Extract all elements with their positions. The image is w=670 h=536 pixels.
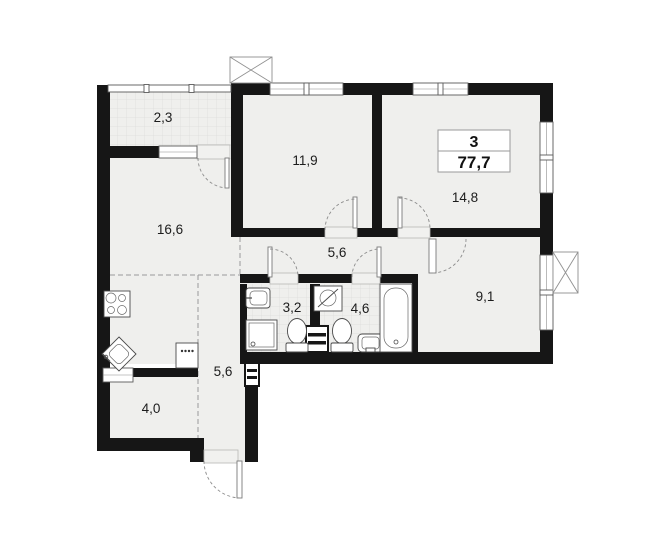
room-label-kitchen-living: 16,6	[157, 222, 183, 237]
wall-top-b	[343, 83, 413, 95]
entrance-door-leaf	[237, 461, 242, 498]
room-label-room-1: 11,9	[292, 153, 317, 168]
entrance-door-arc	[204, 461, 241, 498]
room-label-room-3: 9,1	[476, 289, 495, 304]
wall-outer-left	[97, 85, 110, 451]
wall-rooms-bottom-b	[357, 228, 398, 237]
wall-bottom	[240, 352, 553, 364]
door-leaf-room-2	[398, 197, 402, 228]
total-area: 77,7	[457, 153, 490, 172]
floor-plan: 2,3 11,9 14,8 16,6 5,6 3,2 4,6 9,1 5,6 4…	[0, 0, 670, 536]
window-mullion	[438, 83, 443, 95]
opening-room-2	[398, 227, 430, 238]
wall-rooms-bottom-c	[430, 228, 553, 237]
window-mullion	[304, 83, 309, 95]
shower-tray-symbol	[246, 320, 277, 350]
wall-room-divider	[372, 95, 382, 228]
wall-bath-top-b	[298, 274, 352, 283]
balcony-glazing	[108, 85, 231, 92]
stove-symbol	[104, 291, 130, 317]
glazing-mullion	[144, 85, 149, 93]
vent-shaft-right	[553, 252, 578, 293]
window-mullion	[540, 290, 553, 295]
wall-top-a	[231, 83, 271, 95]
window-mullion	[540, 155, 553, 160]
washing-machine-symbol	[314, 286, 342, 311]
duct-corridor	[245, 363, 259, 386]
wall-balcony-right	[231, 83, 243, 237]
room-label-corridor: 5,6	[214, 364, 233, 379]
bathtub-symbol	[380, 284, 412, 352]
wall-bath-top-a	[240, 274, 270, 283]
door-leaf-wc	[268, 247, 272, 277]
opening-wc	[270, 273, 298, 284]
door-leaf-bathroom	[377, 247, 381, 277]
wall-bath-right	[412, 274, 418, 352]
room-label-wc: 3,2	[283, 300, 302, 315]
wall-sink-symbol	[246, 288, 270, 308]
door-leaf-room-1	[353, 197, 357, 228]
opening-room-1	[325, 227, 357, 238]
door-leaf-balcony	[225, 158, 229, 188]
room-label-bathroom: 4,6	[351, 301, 370, 316]
bathroom-sink-symbol	[358, 334, 383, 352]
door-leaf-room-3	[429, 239, 436, 273]
toilet-symbol	[286, 319, 308, 353]
toilet-symbol	[331, 319, 353, 353]
opening-balcony	[197, 145, 230, 159]
wall-rooms-bottom-a	[243, 228, 325, 237]
room-label-balcony: 2,3	[154, 110, 173, 125]
wall-storage-bottom	[97, 438, 204, 451]
glazing-mullion	[189, 85, 194, 93]
wall-storage-top	[132, 368, 198, 377]
vent-shaft-top	[230, 57, 272, 83]
wall-entrance-step	[190, 438, 204, 462]
rooms-count: 3	[470, 134, 479, 151]
wall-balcony-bottom	[97, 146, 159, 158]
opening-bathroom	[352, 273, 380, 284]
room-label-room-2: 14,8	[452, 190, 478, 205]
room-label-storage: 4,0	[142, 401, 161, 416]
apartment-info-box: 3 77,7	[438, 130, 510, 172]
appliance-symbol	[176, 343, 198, 368]
room-label-hallway: 5,6	[328, 245, 347, 260]
opening-entrance	[204, 450, 238, 463]
duct-bathroom	[306, 326, 328, 352]
